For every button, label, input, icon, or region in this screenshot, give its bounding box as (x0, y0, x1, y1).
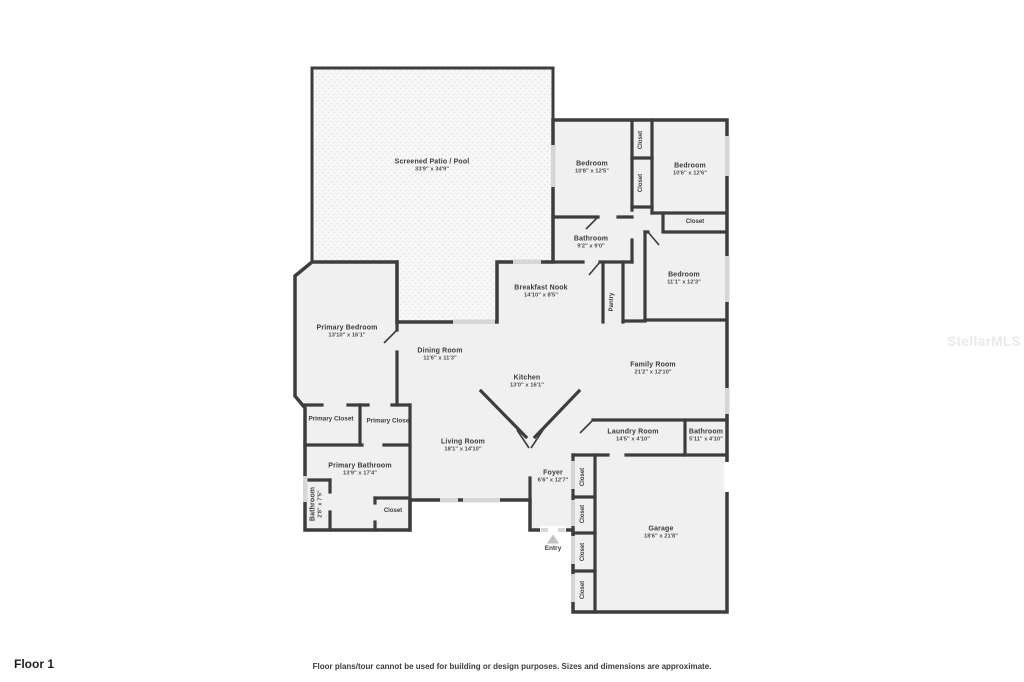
pantry-label: Pantry (609, 293, 617, 312)
room-label-primary-bedroom: Primary Bedroom 13'10" x 16'1" (317, 324, 378, 341)
floor-title: Floor 1 (14, 657, 54, 671)
room-label-dining-room: Dining Room 11'6" x 11'3" (417, 347, 462, 364)
room-label-bedroom-2: Bedroom 10'6" x 12'6" (673, 162, 707, 179)
room-label-bedroom-1: Bedroom 10'8" x 12'5" (575, 160, 609, 177)
room-label-family-room: Family Room 21'2" x 12'10" (630, 361, 676, 378)
room-label-screened-patio: Screened Patio / Pool 33'9" x 34'9" (395, 158, 470, 175)
floor-plan-walls (0, 0, 1024, 682)
closet-label: Closet (638, 174, 646, 192)
room-label-breakfast-nook: Breakfast Nook 14'10" x 8'5" (514, 284, 567, 301)
room-label-bathroom-2: Bathroom 5'11" x 4'10" (689, 428, 723, 445)
closet-label: Closet (580, 505, 588, 523)
entry-label: Entry (545, 545, 562, 553)
room-label-garage: Garage 18'6" x 21'8" (644, 525, 678, 542)
closet-label: Closet (638, 131, 646, 149)
watermark: StellarMLS (947, 334, 1021, 349)
primary-closet-label: Primary Closet (307, 415, 355, 422)
closet-label: Closet (686, 219, 704, 227)
primary-closet-label: Primary Closet (365, 417, 413, 424)
entry-arrow-icon (547, 535, 559, 544)
closet-label: Closet (580, 581, 588, 599)
room-label-bathroom-hall: Bathroom 9'2" x 9'0" (574, 235, 608, 252)
room-label-primary-bathroom: Primary Bathroom 13'9" x 17'4" (328, 462, 391, 479)
closet-label: Closet (580, 543, 588, 561)
room-label-laundry-room: Laundry Room 14'5" x 4'10" (607, 428, 658, 445)
floor-plan-canvas: Screened Patio / Pool 33'9" x 34'9" Bedr… (0, 0, 1024, 682)
closet-label: Closet (384, 508, 402, 516)
room-label-kitchen: Kitchen 13'0" x 16'1" (510, 374, 544, 391)
room-label-bathroom-small: Bathroom 2'8" x 7'5" (309, 487, 326, 521)
disclaimer-text: Floor plans/tour cannot be used for buil… (313, 662, 712, 671)
closet-label: Closet (580, 468, 588, 486)
room-label-living-room: Living Room 18'1" x 14'10" (441, 438, 485, 455)
room-label-foyer: Foyer 6'6" x 12'7" (538, 469, 569, 486)
room-label-bedroom-3: Bedroom 11'1" x 12'3" (667, 271, 701, 288)
